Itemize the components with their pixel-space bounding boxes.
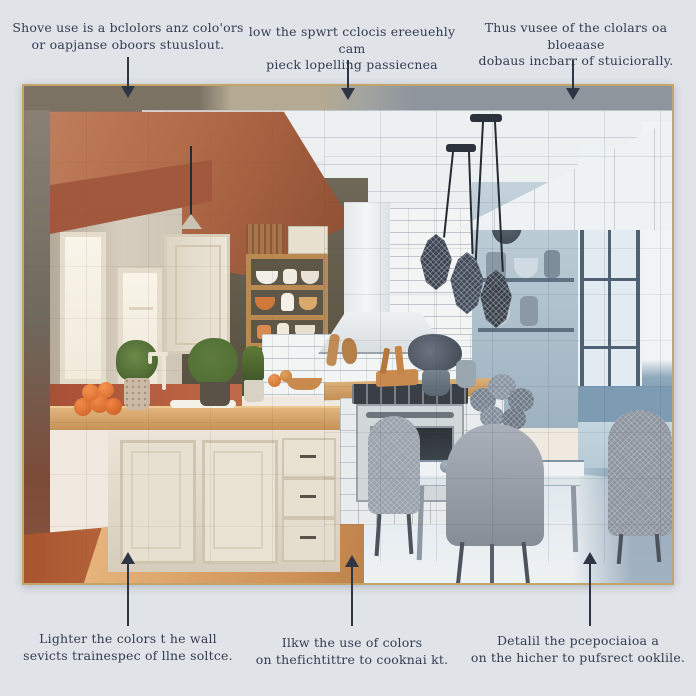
white-jug	[281, 293, 294, 311]
white-bowl	[256, 271, 278, 284]
drawer-handle	[300, 455, 316, 458]
window-mullion	[129, 307, 153, 310]
storage-box	[288, 226, 328, 254]
down-arrowhead-icon	[121, 86, 135, 98]
bottom-label-3: Detalil the pcepociaioa a on the hicher …	[462, 633, 694, 666]
window-mullion	[608, 218, 611, 414]
window-mullion	[584, 278, 636, 281]
planter-pot	[200, 382, 230, 406]
kitchen-scene-image	[22, 84, 674, 585]
drawer	[282, 518, 336, 562]
faucet-spout	[150, 352, 168, 356]
gray-vase	[520, 296, 538, 326]
gray-jug	[544, 250, 560, 278]
up-arrowhead-icon	[345, 555, 359, 567]
cabinet-door	[202, 440, 278, 564]
shelf-board	[251, 285, 323, 290]
drawer-handle	[300, 495, 316, 498]
top-label-2-line1: low the spwrt cclocis ereeuehly cam	[244, 24, 460, 57]
shelf-board	[478, 328, 574, 332]
pendant-ceiling-mount	[446, 144, 476, 152]
cabinet-door-panel	[131, 451, 181, 549]
dining-chair-left	[368, 416, 420, 514]
up-arrow-icon	[589, 564, 591, 626]
down-arrowhead-icon	[341, 88, 355, 100]
bottom-label-1-line2: sevicts trainespec of llne soltce.	[10, 648, 246, 665]
window-left-1	[60, 232, 106, 384]
oven-handle	[366, 412, 454, 418]
speckled-vase	[124, 378, 150, 410]
bottom-label-2-line1: Ilkw the use of colors	[244, 635, 460, 652]
top-label-2-line2: pieck lopelling passiecnea	[244, 57, 460, 74]
jar	[283, 269, 297, 284]
bottom-label-2-line2: on thefichtittre to cooknai kt.	[244, 652, 460, 669]
wicker-basket	[246, 224, 284, 254]
orange-fruit	[105, 398, 122, 415]
herb-pot	[244, 380, 264, 402]
bottom-label-3-line2: on the hicher to pufsrect ooklile.	[462, 650, 694, 667]
dining-chair-center	[446, 424, 544, 546]
up-arrow-icon	[351, 567, 353, 626]
up-arrow-icon	[127, 564, 129, 626]
up-arrowhead-icon	[583, 552, 597, 564]
cabinet-door-panel	[213, 451, 263, 549]
top-label-3: Thus vusee of the clolars oa bloeaase do…	[466, 20, 686, 70]
faucet	[162, 354, 166, 390]
top-label-3-line1: Thus vusee of the clolars oa bloeaase	[466, 20, 686, 53]
top-label-1-line1: Shove use is a bclolors anz colo'ors	[12, 20, 244, 37]
left-corner-wall	[24, 110, 50, 583]
bottom-label-2: Ilkw the use of colors on thefichtittre …	[244, 635, 460, 668]
orange-bowl	[255, 297, 275, 310]
gray-foliage	[408, 334, 462, 372]
top-label-2: low the spwrt cclocis ereeuehly cam piec…	[244, 24, 460, 74]
white-bowl	[301, 271, 319, 284]
pendant-rod	[190, 146, 192, 216]
range-hood-chimney	[344, 202, 390, 314]
base-cabinets-left	[108, 430, 340, 572]
stove-cooktop	[352, 384, 468, 404]
pendant-ceiling-mount	[470, 114, 502, 122]
top-label-1-line2: or oapjanse oboors stuuslout.	[12, 37, 244, 54]
down-arrow-icon	[572, 60, 574, 88]
bottom-label-1-line1: Lighter the colors t he wall	[10, 631, 246, 648]
orange-fruit	[98, 382, 114, 398]
orange-fruit	[82, 384, 99, 401]
wood-bowl	[299, 297, 317, 310]
oranges-cluster	[72, 380, 124, 418]
shelf-board	[251, 315, 323, 320]
down-arrowhead-icon	[566, 88, 580, 100]
drawer	[282, 438, 336, 478]
down-arrow-icon	[347, 60, 349, 88]
faucet-drop	[148, 352, 152, 364]
bottom-label-3-line1: Detalil the pcepociaioa a	[462, 633, 694, 650]
upper-cabinet	[164, 234, 230, 354]
gray-plant-vase	[422, 370, 450, 396]
annotated-kitchen-infographic: { "background_color": "#e0e3e8", "frame"…	[0, 0, 696, 696]
herb-grass	[242, 346, 264, 380]
drawer	[282, 478, 336, 518]
cabinet-panel	[175, 245, 221, 345]
down-arrow-icon	[127, 57, 129, 87]
top-label-3-line2: dobaus incbarr of stuiciorally.	[466, 53, 686, 70]
bottom-label-1: Lighter the colors t he wall sevicts tra…	[10, 631, 246, 664]
cabinet-door	[120, 440, 196, 564]
chair-leg	[490, 544, 494, 585]
top-label-1: Shove use is a bclolors anz colo'ors or …	[12, 20, 244, 53]
window-mullion	[584, 346, 636, 349]
gray-bowl	[514, 258, 538, 278]
dining-chair-right	[608, 410, 672, 536]
up-arrowhead-icon	[121, 552, 135, 564]
drawer-handle	[300, 536, 316, 539]
